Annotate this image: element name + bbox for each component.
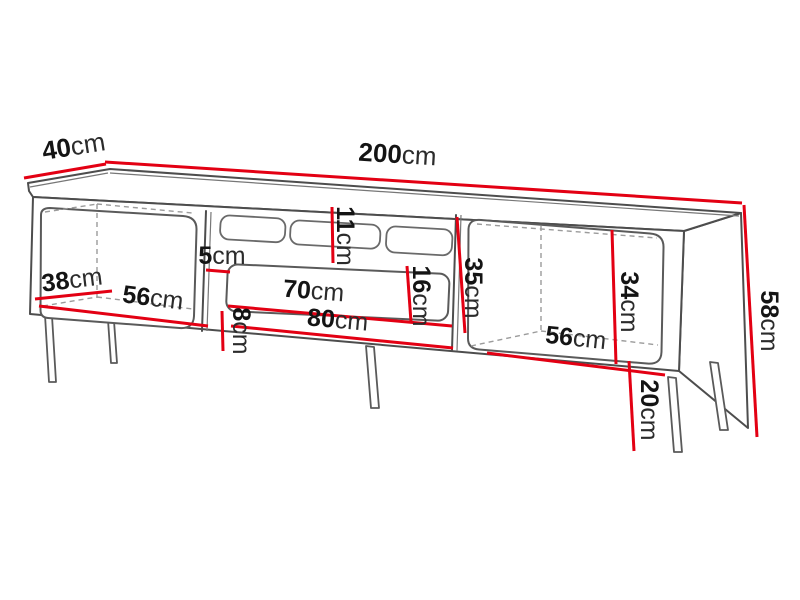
dim-label-58: 58cm bbox=[755, 290, 783, 351]
dim-line-20 bbox=[629, 361, 634, 451]
dim-line-5 bbox=[206, 270, 230, 272]
vent-slot-3 bbox=[386, 226, 453, 256]
dim-label-16: 16cm bbox=[407, 265, 435, 326]
leg-back-left bbox=[108, 320, 117, 363]
furniture-dimension-diagram: 40cm 200cm 38cm 56cm 5cm 11cm 70cm 16cm … bbox=[0, 0, 800, 600]
right-side-panel bbox=[679, 213, 748, 428]
dim-label-8: 8cm bbox=[227, 307, 255, 354]
leg-front-left bbox=[45, 315, 56, 382]
dim-label-35: 35cm bbox=[459, 257, 487, 318]
dim-label-40: 40cm bbox=[40, 126, 108, 166]
vent-slot-1 bbox=[220, 215, 286, 243]
dim-label-200: 200cm bbox=[358, 137, 438, 172]
leg-front-middle bbox=[366, 346, 379, 408]
leg-front-right bbox=[668, 377, 682, 452]
dim-label-20: 20cm bbox=[635, 379, 663, 440]
dim-label-80: 80cm bbox=[306, 303, 369, 336]
dim-line-8 bbox=[222, 311, 223, 351]
dim-label-5: 5cm bbox=[198, 242, 245, 270]
dim-label-11: 11cm bbox=[331, 206, 359, 266]
dim-label-70: 70cm bbox=[282, 275, 345, 308]
dim-label-34: 34cm bbox=[615, 271, 643, 332]
